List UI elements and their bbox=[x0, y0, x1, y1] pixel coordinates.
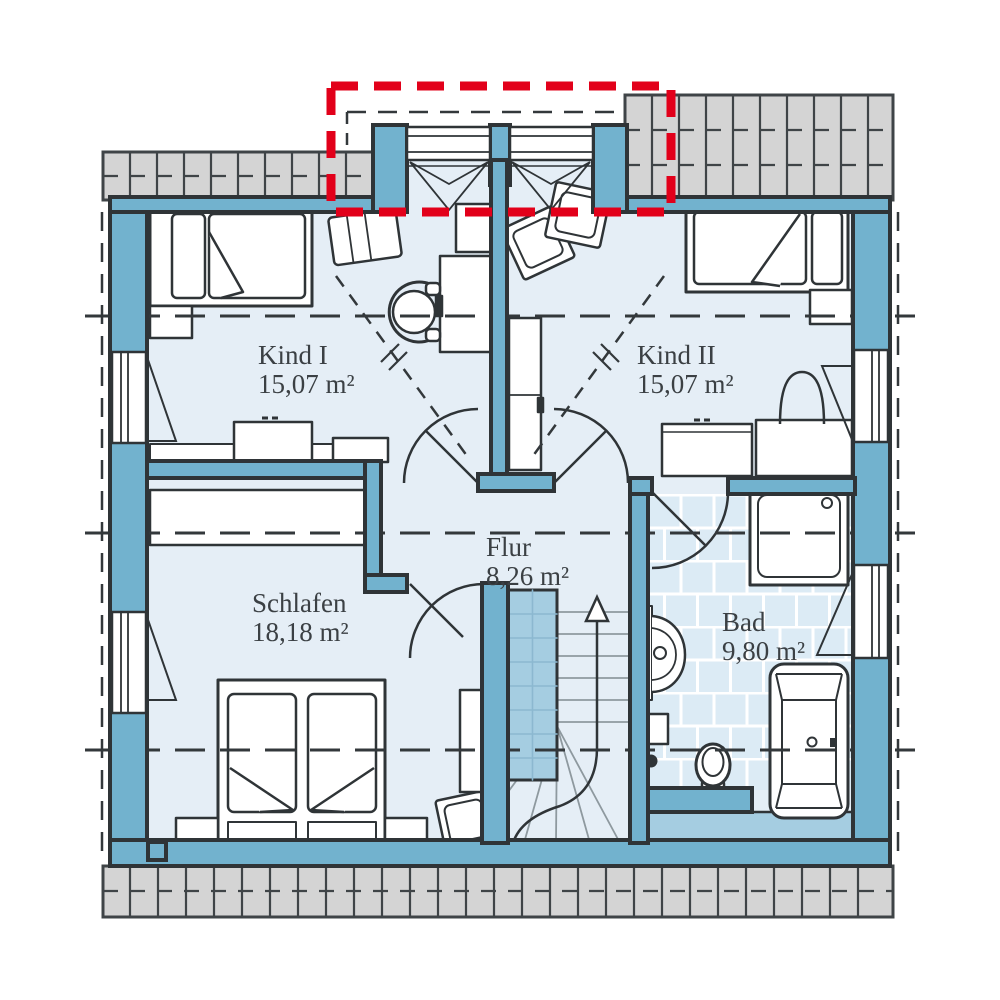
window-schlafen bbox=[112, 612, 146, 713]
room-area-flur: 8,26 m² bbox=[486, 561, 569, 591]
wall-kind1-schlafen bbox=[147, 461, 380, 478]
tall-cabinet bbox=[460, 690, 483, 792]
wall-center-base bbox=[478, 474, 554, 491]
lounge-chair bbox=[328, 209, 402, 266]
sideboard bbox=[234, 422, 312, 462]
wardrobe-long bbox=[150, 490, 372, 545]
dormer-pier-right bbox=[593, 125, 627, 212]
nightstand bbox=[810, 290, 852, 324]
floor-plan-drawing: Kind I 15,07 m² Kind II 15,07 m² Flur 8,… bbox=[0, 0, 1000, 1000]
wall-schlafen-flur bbox=[365, 461, 381, 592]
wall-bad-top bbox=[728, 478, 855, 494]
dresser bbox=[333, 438, 388, 462]
wall-schlafen-door-jamb bbox=[365, 575, 407, 592]
room-area-kind1: 15,07 m² bbox=[258, 369, 355, 399]
window-kind2 bbox=[854, 350, 888, 442]
eave-top-right bbox=[625, 95, 893, 200]
room-area-schlafen: 18,18 m² bbox=[252, 617, 349, 647]
dormer-window-right bbox=[510, 127, 593, 160]
room-label-bad: Bad bbox=[722, 607, 766, 637]
window-bad bbox=[854, 565, 888, 658]
room-area-kind2: 15,07 m² bbox=[637, 369, 734, 399]
wall-top-right bbox=[625, 197, 890, 212]
wall-stairs-bad bbox=[630, 478, 648, 843]
room-label-kind1: Kind I bbox=[258, 340, 328, 370]
wall-bad-door-jamb-left bbox=[630, 478, 652, 494]
room-label-flur: Flur bbox=[486, 532, 531, 562]
pillow bbox=[812, 212, 842, 284]
room-label-kind2: Kind II bbox=[637, 340, 716, 370]
eave-bottom bbox=[103, 866, 893, 917]
bathtub bbox=[770, 664, 848, 818]
sideboard bbox=[756, 420, 852, 476]
wall-schlafen-stairs bbox=[482, 583, 508, 843]
floor-plan-page: Kind I 15,07 m² Kind II 15,07 m² Flur 8,… bbox=[0, 0, 1000, 1000]
monitor bbox=[436, 296, 442, 316]
wall-left bbox=[110, 197, 147, 866]
chimney bbox=[148, 842, 166, 860]
shower bbox=[750, 487, 848, 585]
nightstand bbox=[150, 306, 192, 338]
dormer-window-left bbox=[407, 127, 490, 160]
room-label-schlafen: Schlafen bbox=[252, 588, 347, 618]
desk-chair bbox=[389, 282, 440, 342]
dormer-pier-left bbox=[373, 125, 407, 212]
pillow bbox=[172, 214, 205, 298]
wall-center bbox=[491, 160, 507, 476]
wall-bad-knee bbox=[648, 788, 752, 812]
window-kind1 bbox=[112, 352, 146, 443]
wall-right bbox=[853, 197, 890, 866]
room-area-bad: 9,80 m² bbox=[722, 636, 805, 666]
